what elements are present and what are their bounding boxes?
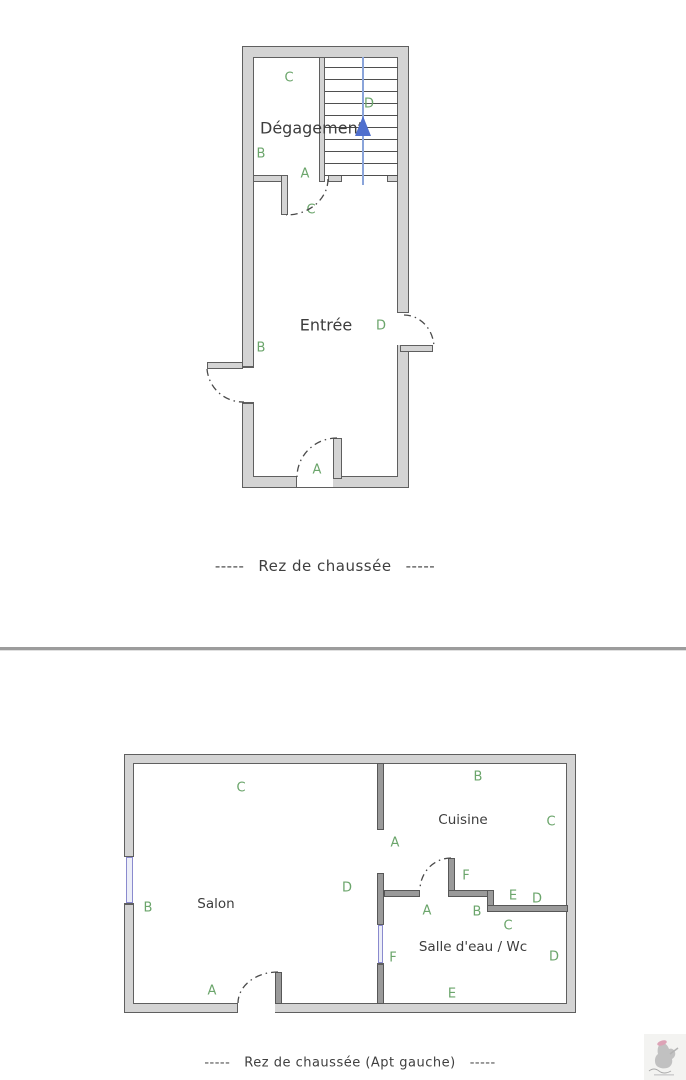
room-label: Salon xyxy=(197,896,234,912)
plan-caption: -----Rez de chaussée (Apt gauche)----- xyxy=(190,1056,509,1071)
room-label: Entrée xyxy=(300,316,352,335)
interior-wall xyxy=(487,905,568,912)
interior-wall xyxy=(377,763,384,830)
caption-dashes: ----- xyxy=(406,557,436,575)
wall-end-cap xyxy=(377,963,384,965)
zone-label: D xyxy=(549,950,559,965)
zone-label: A xyxy=(208,984,217,999)
caption-dashes: ----- xyxy=(470,1056,496,1071)
room-label: Cuisine xyxy=(438,812,487,828)
window xyxy=(378,925,383,963)
zone-label: F xyxy=(389,951,396,966)
door-leaf xyxy=(207,362,243,369)
zone-label: B xyxy=(144,901,153,916)
wall-opening xyxy=(238,1003,275,1013)
door-leaf xyxy=(448,858,455,891)
zone-label: C xyxy=(306,203,315,218)
room-label: Dégagement xyxy=(260,119,364,138)
zone-label: B xyxy=(257,147,266,162)
zone-label: F xyxy=(462,869,469,884)
zone-label: A xyxy=(391,836,400,851)
zone-label: B xyxy=(474,770,483,785)
zone-label: E xyxy=(448,987,456,1002)
window xyxy=(126,857,133,903)
wall-opening xyxy=(397,313,409,345)
caption-dashes: ----- xyxy=(204,1056,230,1071)
wall-end-cap xyxy=(237,1004,239,1013)
room-label: Salle d'eau / Wc xyxy=(419,939,527,955)
zone-label: D xyxy=(376,319,386,334)
zone-label: B xyxy=(473,905,482,920)
wall-end-cap xyxy=(243,366,253,368)
wall-opening xyxy=(297,476,333,487)
zone-label: A xyxy=(313,463,322,478)
interior-wall xyxy=(384,890,420,897)
wall-end-cap xyxy=(125,903,133,905)
zone-label: B xyxy=(257,341,266,356)
door-leaf xyxy=(400,345,433,352)
agency-logo-icon xyxy=(644,1034,686,1080)
door-leaf xyxy=(281,175,288,215)
zone-label: C xyxy=(503,919,512,934)
caption-dashes: ----- xyxy=(215,557,245,575)
zone-label: E xyxy=(509,889,517,904)
zone-label: D xyxy=(532,892,542,907)
wall-end-cap xyxy=(377,924,384,926)
caption-text: Rez de chaussée (Apt gauche) xyxy=(244,1056,455,1071)
wall-opening xyxy=(242,368,254,402)
wall-end-cap xyxy=(125,856,133,858)
zone-label: D xyxy=(364,97,374,112)
wall-end-cap xyxy=(296,477,298,487)
zone-label: A xyxy=(301,167,310,182)
caption-text: Rez de chaussée xyxy=(258,557,391,575)
zone-label: A xyxy=(423,904,432,919)
floor-plan-page: Dégagement Entrée C D B A C B D A -----R… xyxy=(0,0,686,1080)
section-divider-highlight xyxy=(0,650,686,651)
zone-label: C xyxy=(546,815,555,830)
zone-label: C xyxy=(236,781,245,796)
plan-caption: -----Rez de chaussée----- xyxy=(201,557,449,575)
zone-label: C xyxy=(284,71,293,86)
door-swing-arc xyxy=(207,369,244,402)
zone-label: D xyxy=(342,881,352,896)
door-leaf xyxy=(333,438,342,479)
door-leaf xyxy=(275,972,282,1004)
wall-end-cap xyxy=(243,402,253,404)
wall-end-cap xyxy=(398,312,408,314)
